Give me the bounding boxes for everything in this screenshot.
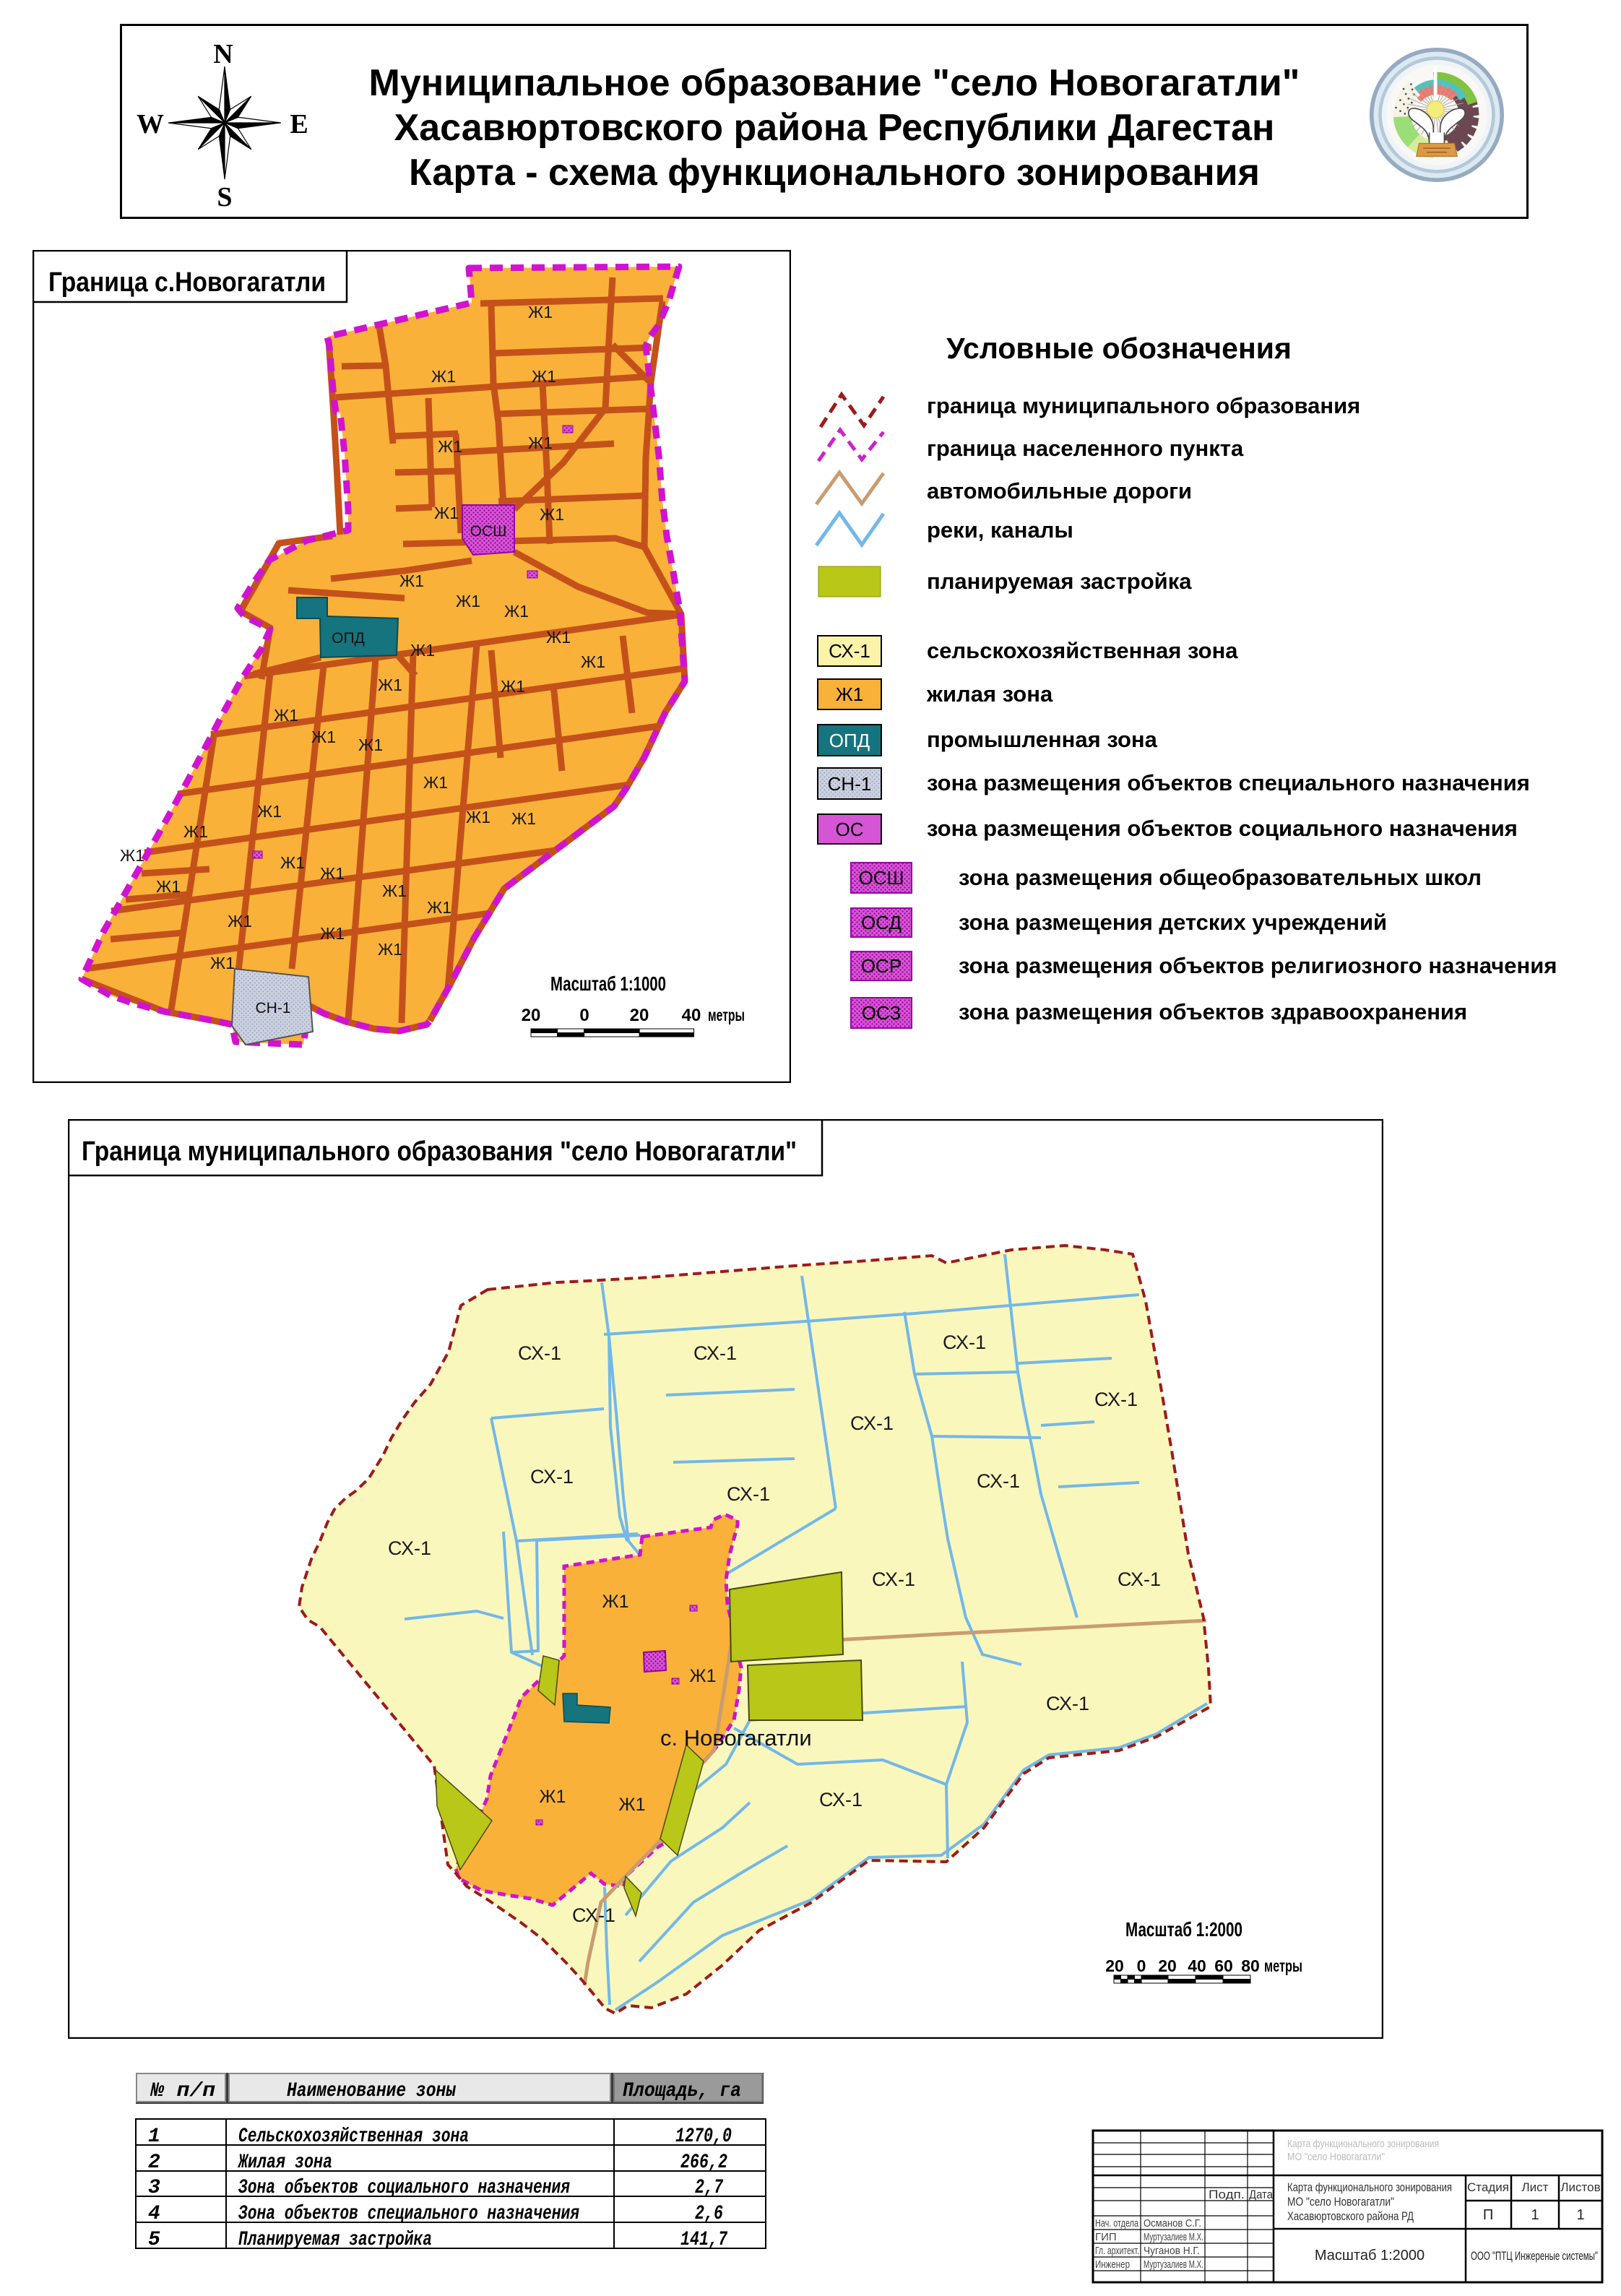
svg-text:1270,0: 1270,0 bbox=[675, 2125, 732, 2148]
svg-text:СХ-1: СХ-1 bbox=[829, 640, 870, 662]
svg-text:Ж1: Ж1 bbox=[466, 808, 490, 827]
svg-text:ГИП: ГИП bbox=[1095, 2231, 1117, 2243]
svg-text:СХ-1: СХ-1 bbox=[693, 1342, 737, 1364]
svg-text:ОСШ: ОСШ bbox=[859, 867, 904, 889]
svg-text:Площадь, га: Площадь, га bbox=[623, 2080, 741, 2102]
svg-text:Масштаб 1:1000: Масштаб 1:1000 bbox=[550, 972, 666, 995]
svg-text:2: 2 bbox=[148, 2152, 160, 2174]
svg-text:Ж1: Ж1 bbox=[156, 877, 181, 896]
svg-text:жилая зона: жилая зона bbox=[926, 681, 1053, 707]
svg-text:4: 4 bbox=[148, 2203, 160, 2225]
svg-text:промышленная зона: промышленная зона bbox=[927, 727, 1158, 752]
svg-text:141,7: 141,7 bbox=[680, 2229, 728, 2251]
svg-text:ОСШ: ОСШ bbox=[470, 523, 507, 540]
svg-text:Зона объектов социального назн: Зона объектов социального назначения bbox=[238, 2177, 570, 2199]
svg-text:Планируемая застройка: Планируемая застройка bbox=[238, 2229, 432, 2251]
svg-text:СХ-1: СХ-1 bbox=[518, 1342, 561, 1364]
svg-text:Масштаб 1:2000: Масштаб 1:2000 bbox=[1315, 2248, 1425, 2263]
svg-text:Листов: Листов bbox=[1560, 2180, 1600, 2194]
svg-text:Лист: Лист bbox=[1522, 2180, 1549, 2194]
svg-text:планируемая застройка: планируемая застройка bbox=[927, 569, 1192, 594]
svg-text:СН-1: СН-1 bbox=[255, 1000, 290, 1017]
svg-text:СХ-1: СХ-1 bbox=[530, 1466, 574, 1488]
svg-text:Инженер: Инженер bbox=[1095, 2258, 1130, 2271]
svg-text:Ж1: Ж1 bbox=[619, 1795, 646, 1815]
svg-text:граница муниципального образов: граница муниципального образования bbox=[927, 393, 1360, 418]
svg-text:Ж1: Ж1 bbox=[431, 367, 456, 386]
svg-text:Хасавюртовского района РД: Хасавюртовского района РД bbox=[1287, 2209, 1414, 2223]
svg-text:Ж1: Ж1 bbox=[532, 367, 556, 386]
svg-text:зона размещения общеобразовате: зона размещения общеобразовательных школ bbox=[959, 865, 1482, 890]
svg-text:2,6: 2,6 bbox=[695, 2203, 723, 2225]
svg-text:1: 1 bbox=[1576, 2207, 1584, 2223]
svg-text:Ж1: Ж1 bbox=[456, 592, 480, 610]
svg-text:Ж1: Ж1 bbox=[540, 505, 564, 524]
svg-text:СХ-1: СХ-1 bbox=[872, 1568, 915, 1590]
svg-text:60: 60 bbox=[1214, 1956, 1233, 1975]
svg-text:Ж1: Ж1 bbox=[511, 809, 536, 828]
svg-text:зона размещения объектов здрав: зона размещения объектов здравоохранения bbox=[959, 999, 1467, 1024]
svg-text:266,2: 266,2 bbox=[680, 2152, 727, 2174]
svg-text:Ж1: Ж1 bbox=[528, 433, 553, 452]
svg-text:N: N bbox=[213, 39, 233, 69]
svg-text:1: 1 bbox=[1531, 2207, 1539, 2223]
svg-text:ОС: ОС bbox=[836, 819, 864, 840]
svg-text:Ж1: Ж1 bbox=[120, 846, 144, 865]
svg-text:Зона объектов специального наз: Зона объектов специального назначения bbox=[238, 2203, 579, 2225]
svg-text:Подп.: Подп. bbox=[1209, 2188, 1245, 2201]
svg-text:Ж1: Ж1 bbox=[280, 853, 305, 872]
svg-text:0: 0 bbox=[1137, 1956, 1146, 1975]
svg-text:20: 20 bbox=[1158, 1956, 1177, 1975]
svg-text:Ж1: Ж1 bbox=[528, 303, 553, 321]
svg-text:Дата: Дата bbox=[1249, 2188, 1273, 2201]
svg-text:ОСД: ОСД bbox=[861, 912, 902, 933]
svg-text:Сельскохозяйственная зона: Сельскохозяйственная зона bbox=[238, 2125, 469, 2148]
svg-text:ОПД: ОПД bbox=[332, 630, 365, 647]
svg-text:40: 40 bbox=[682, 1006, 701, 1025]
svg-text:СХ-1: СХ-1 bbox=[572, 1904, 615, 1926]
svg-text:СХ-1: СХ-1 bbox=[1046, 1693, 1089, 1714]
svg-text:S: S bbox=[217, 182, 232, 210]
svg-text:Стадия: Стадия bbox=[1467, 2180, 1509, 2194]
svg-text:Ж1: Ж1 bbox=[183, 822, 208, 841]
svg-text:МО "село Новогагатли": МО "село Новогагатли" bbox=[1287, 2195, 1394, 2209]
svg-text:Масштаб 1:2000: Масштаб 1:2000 bbox=[1125, 1918, 1242, 1941]
svg-text:СХ-1: СХ-1 bbox=[388, 1537, 431, 1559]
svg-text:метры: метры bbox=[708, 1006, 745, 1024]
svg-text:ОСР: ОСР bbox=[861, 955, 902, 977]
svg-text:Ж1: Ж1 bbox=[210, 954, 235, 972]
svg-text:метры: метры bbox=[1264, 1956, 1302, 1975]
svg-text:МО "село Новогагатли": МО "село Новогагатли" bbox=[1287, 2151, 1385, 2163]
svg-text:СХ-1: СХ-1 bbox=[1094, 1389, 1138, 1410]
svg-text:СХ-1: СХ-1 bbox=[819, 1789, 863, 1811]
svg-text:сельскохозяйственная зона: сельскохозяйственная зона bbox=[927, 638, 1238, 663]
svg-text:зона размещения объектов специ: зона размещения объектов специального на… bbox=[927, 770, 1530, 795]
svg-text:Ж1: Ж1 bbox=[228, 912, 252, 931]
svg-text:Ж1: Ж1 bbox=[423, 773, 448, 792]
svg-text:Ж1: Ж1 bbox=[501, 677, 525, 696]
svg-text:Наименование зоны: Наименование зоны bbox=[287, 2080, 456, 2102]
svg-text:СХ-1: СХ-1 bbox=[943, 1332, 986, 1353]
svg-text:2,7: 2,7 bbox=[695, 2177, 724, 2199]
svg-text:ООО "ПТЦ Инжереные системы": ООО "ПТЦ Инжереные системы" bbox=[1471, 2249, 1598, 2263]
svg-text:20: 20 bbox=[1105, 1956, 1124, 1975]
svg-text:Муртузалиев М.Х.: Муртузалиев М.Х. bbox=[1144, 2231, 1203, 2243]
svg-text:Ж1: Ж1 bbox=[581, 652, 605, 671]
svg-text:Жилая зона: Жилая зона bbox=[237, 2152, 332, 2174]
svg-text:Ж1: Ж1 bbox=[540, 1787, 566, 1807]
svg-text:Ж1: Ж1 bbox=[378, 676, 402, 694]
svg-text:W: W bbox=[137, 109, 164, 139]
svg-text:Ж1: Ж1 bbox=[382, 881, 407, 900]
svg-text:80: 80 bbox=[1241, 1956, 1260, 1975]
svg-text:автомобильные дороги: автомобильные дороги bbox=[927, 478, 1192, 504]
svg-text:Ж1: Ж1 bbox=[399, 571, 424, 590]
svg-text:Карта функционального зонирова: Карта функционального зонирования bbox=[1287, 2138, 1439, 2150]
svg-text:Граница с.Новогагатли: Граница с.Новогагатли bbox=[48, 267, 326, 298]
svg-text:Ж1: Ж1 bbox=[427, 898, 451, 917]
svg-text:Ж1: Ж1 bbox=[274, 706, 298, 725]
svg-text:ОСЗ: ОСЗ bbox=[862, 1002, 901, 1024]
svg-text:Чуганов Н.Г.: Чуганов Н.Г. bbox=[1144, 2245, 1200, 2257]
svg-text:20: 20 bbox=[630, 1006, 649, 1025]
svg-text:5: 5 bbox=[148, 2229, 160, 2251]
svg-text:Гл. архитект.: Гл. архитект. bbox=[1095, 2245, 1139, 2257]
svg-text:Ж1: Ж1 bbox=[690, 1666, 717, 1686]
svg-text:Ж1: Ж1 bbox=[546, 628, 571, 647]
svg-text:Условные обозначения: Условные обозначения bbox=[946, 332, 1292, 365]
svg-text:с. Новогагатли: с. Новогагатли bbox=[660, 1725, 812, 1751]
svg-text:Ж1: Ж1 bbox=[311, 728, 336, 746]
svg-text:зона размещения объектов религ: зона размещения объектов религиозного на… bbox=[959, 953, 1557, 978]
svg-text:Муртузалиев М.Х.: Муртузалиев М.Х. bbox=[1144, 2258, 1203, 2271]
svg-text:Османов С.Г.: Османов С.Г. bbox=[1144, 2217, 1201, 2230]
svg-text:Ж1: Ж1 bbox=[836, 683, 863, 705]
svg-text:Ж1: Ж1 bbox=[257, 802, 282, 821]
svg-text:СХ-1: СХ-1 bbox=[850, 1412, 894, 1434]
svg-text:Карта функционального зонирова: Карта функционального зонирования bbox=[1287, 2180, 1452, 2194]
svg-text:3: 3 bbox=[148, 2177, 160, 2199]
svg-text:ОПД: ОПД bbox=[829, 730, 870, 751]
svg-text:Ж1: Ж1 bbox=[320, 864, 345, 883]
svg-text:40: 40 bbox=[1188, 1956, 1206, 1975]
svg-text:СН-1: СН-1 bbox=[828, 773, 872, 795]
svg-text:Ж1: Ж1 bbox=[410, 641, 435, 660]
svg-text:СХ-1: СХ-1 bbox=[727, 1483, 770, 1505]
svg-text:зона размещения объектов социа: зона размещения объектов социального наз… bbox=[927, 816, 1518, 841]
svg-text:СХ-1: СХ-1 bbox=[977, 1470, 1020, 1492]
svg-text:Ж1: Ж1 bbox=[320, 924, 345, 943]
svg-text:граница населенного пункта: граница населенного пункта bbox=[927, 436, 1244, 461]
svg-text:СХ-1: СХ-1 bbox=[1118, 1568, 1161, 1590]
svg-text:Ж1: Ж1 bbox=[602, 1592, 629, 1612]
svg-text:Нач. отдела: Нач. отдела bbox=[1095, 2217, 1138, 2230]
svg-text:0: 0 bbox=[579, 1006, 589, 1025]
svg-text:Ж1: Ж1 bbox=[358, 735, 383, 754]
svg-text:20: 20 bbox=[522, 1006, 541, 1025]
svg-text:Ж1: Ж1 bbox=[504, 602, 529, 621]
svg-text:Ж1: Ж1 bbox=[378, 940, 402, 959]
svg-text:1: 1 bbox=[148, 2125, 160, 2148]
svg-text:П: П bbox=[1483, 2207, 1493, 2223]
svg-text:Ж1: Ж1 bbox=[438, 437, 462, 456]
svg-text:№ п/п: № п/п bbox=[150, 2080, 215, 2102]
svg-text:зона размещения детских учрежд: зона размещения детских учреждений bbox=[959, 910, 1387, 935]
svg-text:реки, каналы: реки, каналы bbox=[927, 517, 1073, 543]
svg-text:Ж1: Ж1 bbox=[434, 504, 459, 522]
svg-text:Граница муниципального образов: Граница муниципального образования "село… bbox=[82, 1136, 797, 1167]
